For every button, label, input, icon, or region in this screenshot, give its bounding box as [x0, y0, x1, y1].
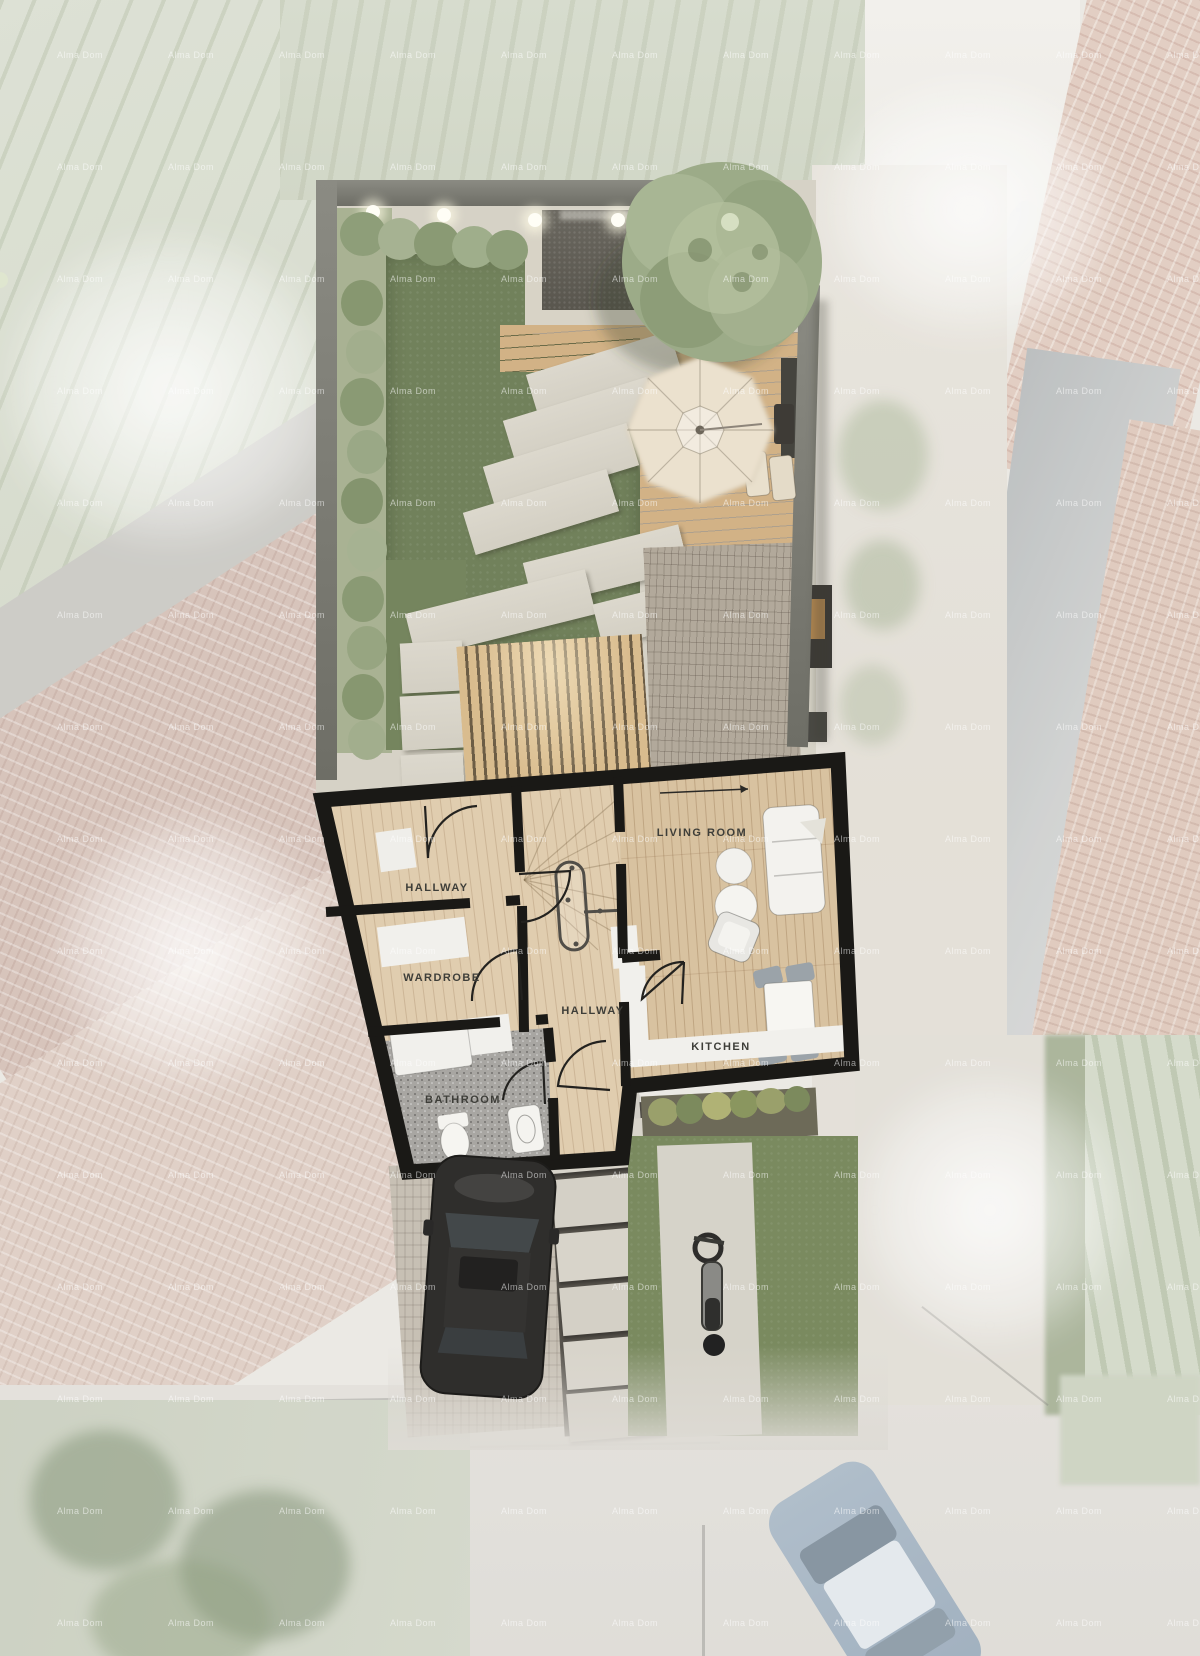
stair-railing	[555, 861, 589, 951]
car-windshield	[443, 1213, 539, 1253]
hallway-closet	[375, 828, 416, 873]
room-label-hallway-upper: HALLWAY	[405, 882, 468, 894]
room-label-kitchen: KITCHEN	[691, 1041, 750, 1053]
tree	[0, 162, 822, 362]
coffee-table	[716, 848, 752, 884]
car-sunroof	[458, 1256, 518, 1292]
lounger	[769, 455, 796, 501]
parked-car-dark	[412, 1153, 564, 1400]
moto-seat	[705, 1298, 720, 1330]
moto-rear-wheel	[703, 1334, 725, 1356]
motorcycle	[694, 1235, 725, 1356]
sink-vanity	[507, 1104, 545, 1154]
room-label-living-room: LIVING ROOM	[657, 827, 747, 839]
room-label-hallway-central: HALLWAY	[561, 1005, 624, 1017]
car-mirror	[423, 1219, 434, 1236]
room-label-bathroom: BATHROOM	[425, 1094, 501, 1106]
plan-vector-layer	[0, 0, 1200, 1656]
car-mirror	[549, 1228, 560, 1245]
site-plan-render: HALLWAY WARDROBE HALLWAY LIVING ROOM KIT…	[0, 0, 1200, 1656]
deck-side-table	[774, 404, 794, 444]
room-label-wardrobe: WARDROBE	[403, 972, 480, 984]
parasol	[627, 357, 773, 503]
